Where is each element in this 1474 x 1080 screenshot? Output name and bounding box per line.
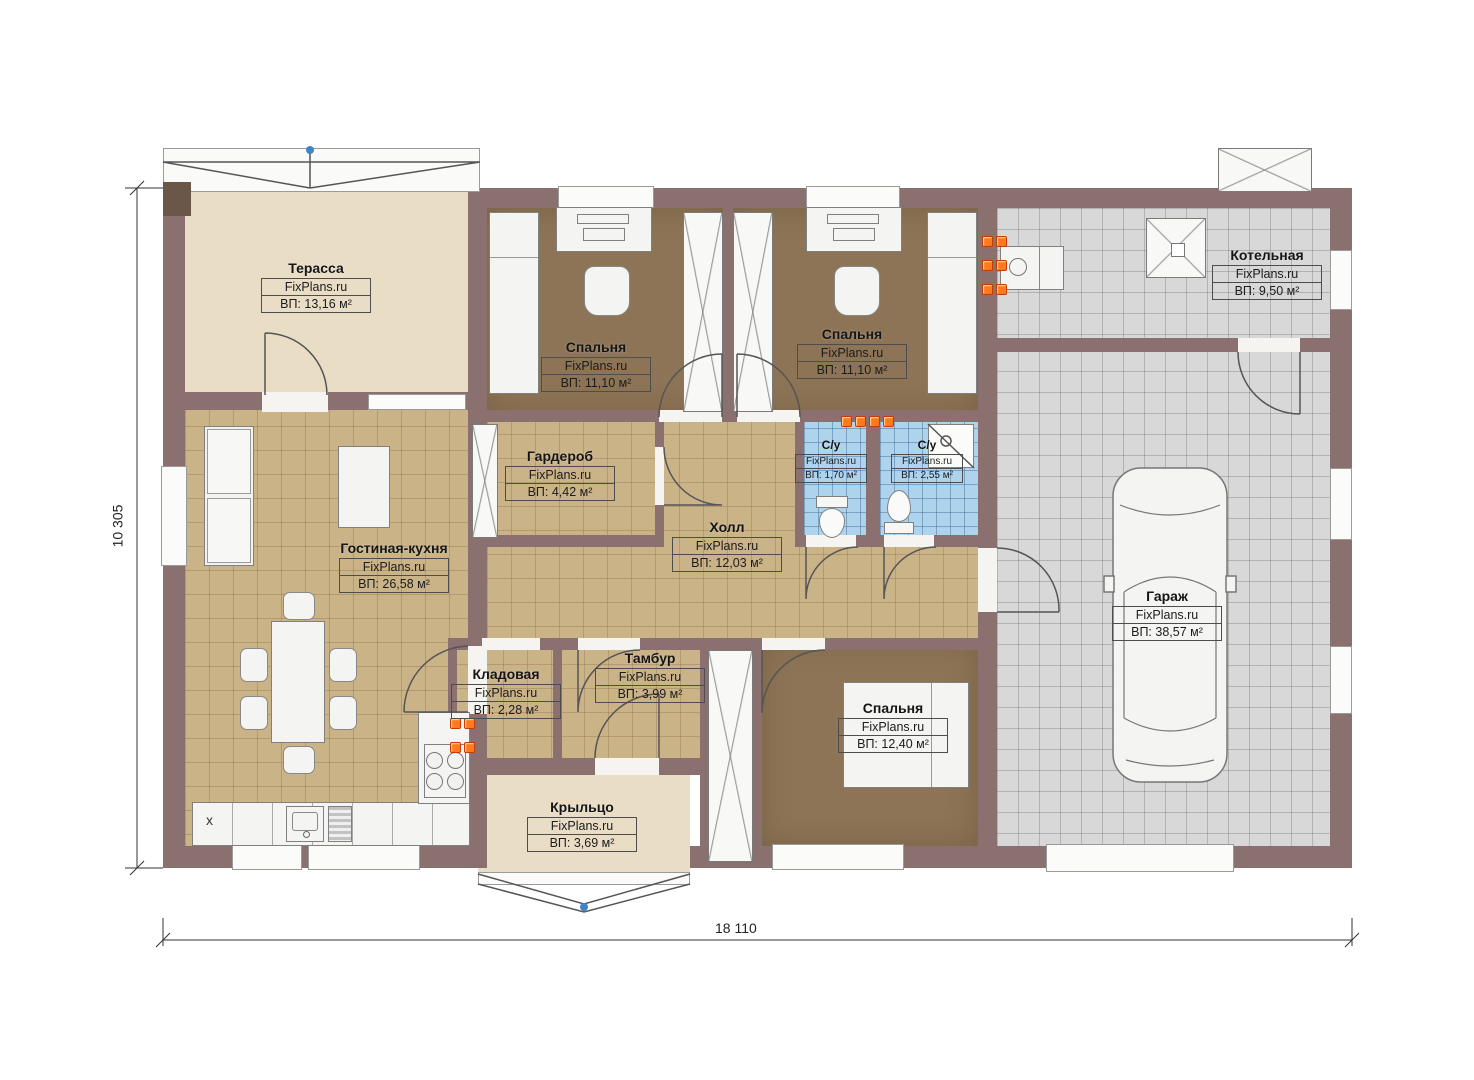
room-label-garage: Гараж FixPlans.ru ВП: 38,57 м² [1112,588,1222,641]
room-name: Котельная [1212,247,1322,263]
radiator-dots [869,416,894,427]
desk-item [833,228,875,241]
window-boiler-right [1330,250,1352,310]
room-watermark: FixPlans.ru [892,455,962,468]
hall-closet [708,650,753,862]
room-watermark: FixPlans.ru [542,358,650,374]
door-opening-wardrobe [655,447,664,505]
kitchen-x-marker: x [206,812,213,828]
stove-burner [426,773,443,790]
wardrobe-closet-strip [472,424,498,538]
room-name: Спальня [838,700,948,716]
desk-item [583,228,625,241]
radiator-dots [982,236,1007,247]
dishwasher [328,806,352,842]
room-area: ВП: 3,69 м² [528,834,636,851]
stove-burner [447,773,464,790]
room-name: С/у [795,438,867,452]
room-name: Спальня [541,339,651,355]
room-area: ВП: 26,58 м² [340,575,448,592]
room-name: С/у [891,438,963,452]
dining-table [271,621,325,743]
room-label-bedroom-3: Спальня FixPlans.ru ВП: 12,40 м² [838,700,948,753]
window-garage-right-1 [1330,468,1352,540]
dining-chair [329,696,357,730]
room-label-wc-1: С/у FixPlans.ru ВП: 1,70 м² [795,438,867,483]
room-area: ВП: 4,42 м² [506,483,614,500]
stove-burner [426,752,443,769]
terrace-awning [163,148,480,192]
room-area: ВП: 1,70 м² [796,468,866,482]
sofa-cushion [207,498,251,563]
room-label-hall: Холл FixPlans.ru ВП: 12,03 м² [672,519,782,572]
room-area: ВП: 13,16 м² [262,295,370,312]
room-label-terrace: Терасса FixPlans.ru ВП: 13,16 м² [261,260,371,313]
desk-chair [834,266,880,316]
room-name: Тамбур [595,650,705,666]
room-area: ВП: 9,50 м² [1213,282,1321,299]
porch-step-slab [478,872,690,885]
room-watermark: FixPlans.ru [1113,607,1221,623]
wall-bedroom3-left [753,638,762,868]
desk-chair [584,266,630,316]
room-label-bedroom-2: Спальня FixPlans.ru ВП: 11,10 м² [797,326,907,379]
room-label-porch: Крыльцо FixPlans.ru ВП: 3,69 м² [527,799,637,852]
door-opening-vestibule [578,638,640,650]
window-bedroom3-bottom [772,844,904,870]
bed [489,212,539,394]
wardrobe-cabinet [733,212,773,412]
room-label-wc-2: С/у FixPlans.ru ВП: 2,55 м² [891,438,963,483]
room-area: ВП: 11,10 м² [542,374,650,391]
window-kitchen-1 [232,844,302,870]
dining-chair [283,746,315,774]
room-name: Крыльцо [527,799,637,815]
wardrobe-cabinet [683,212,723,412]
door-opening-wc2 [884,535,934,547]
door-opening-boiler-garage [1238,338,1300,352]
room-watermark: FixPlans.ru [340,559,448,575]
room-watermark: FixPlans.ru [262,279,370,295]
room-watermark: FixPlans.ru [839,719,947,735]
kitchen-sink [286,806,324,842]
door-opening-bedroom3 [762,638,825,650]
wall-wc-divider [866,410,880,547]
window-bedroom1-top [558,186,654,208]
window-kitchen-2 [308,844,420,870]
room-area: ВП: 11,10 м² [798,361,906,378]
wall-between-bedrooms [723,188,733,418]
room-label-bedroom-1: Спальня FixPlans.ru ВП: 11,10 м² [541,339,651,392]
door-opening-hall-garage [978,548,997,612]
bed [927,212,977,394]
room-label-living-kitchen: Гостиная-кухня FixPlans.ru ВП: 26,58 м² [339,540,449,593]
garage-gate-opening [1046,844,1234,872]
dining-chair [240,648,268,682]
wall-above-porch [448,758,710,775]
coffee-table [338,446,390,528]
room-name: Спальня [797,326,907,342]
room-name: Кладовая [451,666,561,682]
radiator-dots [982,284,1007,295]
window-terrace-bottom [368,394,466,410]
toilet [884,490,914,534]
dimension-width-label: 18 110 [715,920,757,936]
sofa [204,426,254,566]
window-living-left [161,466,187,566]
wall-wardrobe-bottom [487,535,664,547]
door-opening-pantry [482,638,540,650]
room-watermark: FixPlans.ru [596,669,704,685]
radiator-dots [450,742,475,753]
room-area: ВП: 2,28 м² [452,701,560,718]
room-label-boiler: Котельная FixPlans.ru ВП: 9,50 м² [1212,247,1322,300]
room-name: Холл [672,519,782,535]
room-area: ВП: 3,99 м² [596,685,704,702]
desk-item [577,214,629,224]
room-name: Гардероб [505,448,615,464]
room-name: Терасса [261,260,371,276]
room-watermark: FixPlans.ru [506,467,614,483]
room-area: ВП: 2,55 м² [892,468,962,482]
dining-chair [240,696,268,730]
room-label-wardrobe: Гардероб FixPlans.ru ВП: 4,42 м² [505,448,615,501]
door-opening-entry [595,758,659,775]
toilet [816,496,848,538]
room-watermark: FixPlans.ru [673,538,781,554]
desk [806,207,902,252]
dining-chair [329,648,357,682]
dimension-height-label: 10 305 [109,505,125,548]
room-watermark: FixPlans.ru [798,345,906,361]
skylight [1146,218,1206,278]
desk [556,207,652,252]
room-area: ВП: 12,03 м² [673,554,781,571]
room-watermark: FixPlans.ru [528,818,636,834]
floor-plan-page: x [0,0,1474,1080]
room-watermark: FixPlans.ru [1213,266,1321,282]
room-area: ВП: 12,40 м² [839,735,947,752]
room-label-vestibule: Тамбур FixPlans.ru ВП: 3,99 м² [595,650,705,703]
room-name: Гараж [1112,588,1222,604]
window-garage-right-2 [1330,646,1352,714]
desk-item [827,214,879,224]
radiator-dots [841,416,866,427]
boiler-unit [1000,246,1064,290]
chimney-vent [1218,148,1312,192]
terrace-post [163,182,191,216]
room-watermark: FixPlans.ru [796,455,866,468]
room-name: Гостиная-кухня [339,540,449,556]
window-bedroom2-top [806,186,900,208]
stove-burner [447,752,464,769]
door-opening-terrace [262,392,328,412]
room-watermark: FixPlans.ru [452,685,560,701]
room-area: ВП: 38,57 м² [1113,623,1221,640]
radiator-dots [450,718,475,729]
radiator-dots [982,260,1007,271]
room-label-pantry: Кладовая FixPlans.ru ВП: 2,28 м² [451,666,561,719]
sofa-cushion [207,429,251,494]
dining-chair [283,592,315,620]
